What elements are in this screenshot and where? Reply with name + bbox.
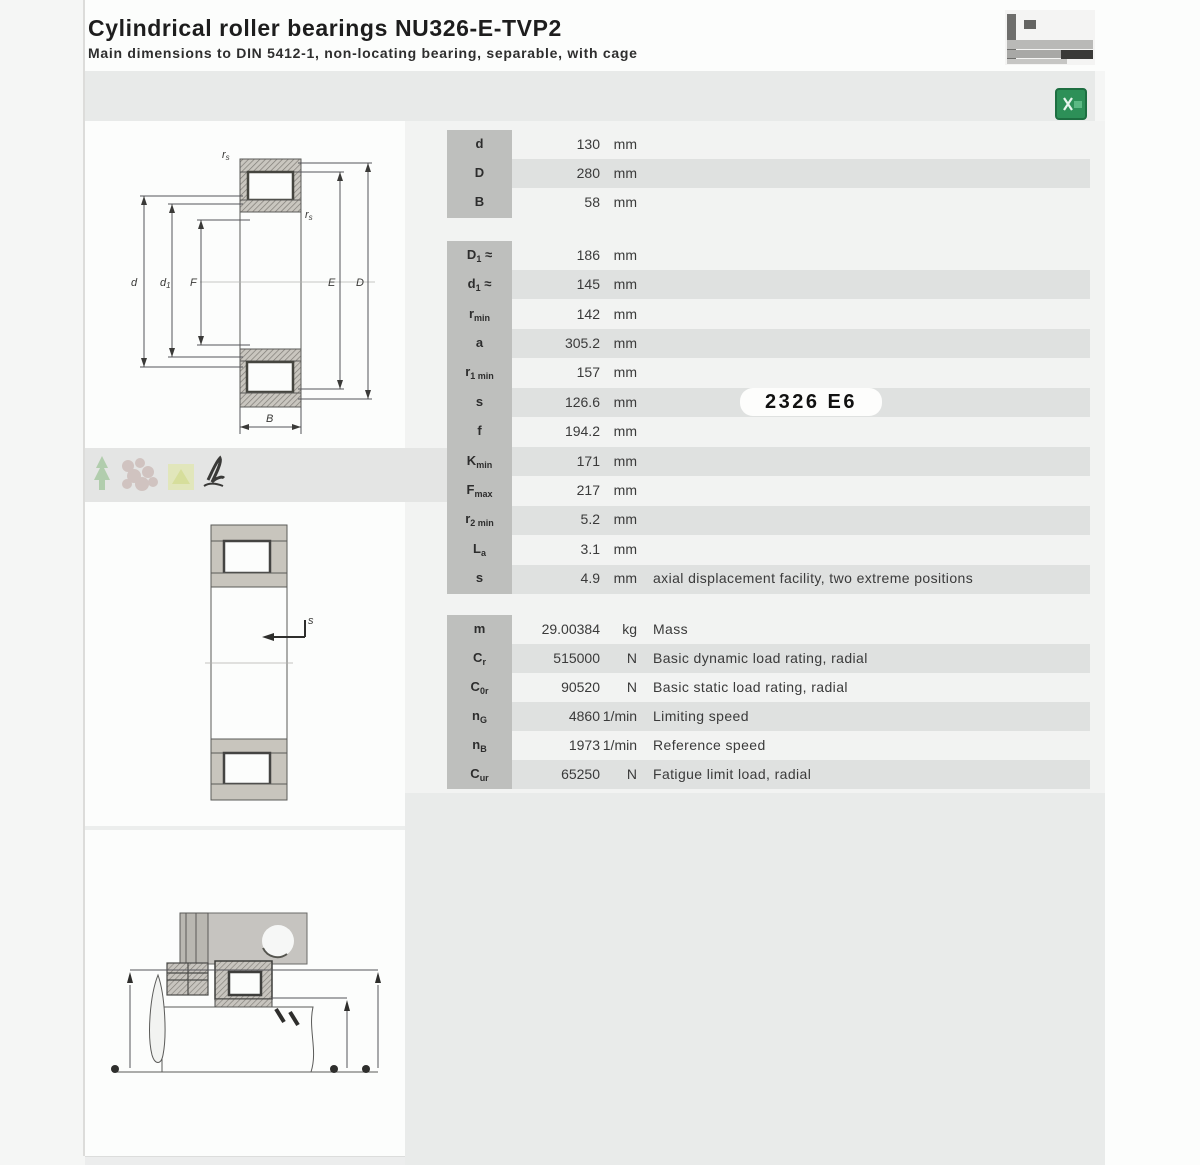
svg-text:d1: d1: [160, 277, 171, 290]
svg-text:s: s: [308, 615, 314, 627]
svg-text:E: E: [328, 277, 336, 289]
svg-text:d: d: [131, 277, 138, 289]
svg-text:D: D: [356, 277, 364, 289]
svg-text:F: F: [190, 277, 198, 289]
svg-text:rs: rs: [222, 149, 230, 162]
svg-text:B: B: [266, 413, 273, 425]
svg-text:rs: rs: [305, 209, 313, 222]
